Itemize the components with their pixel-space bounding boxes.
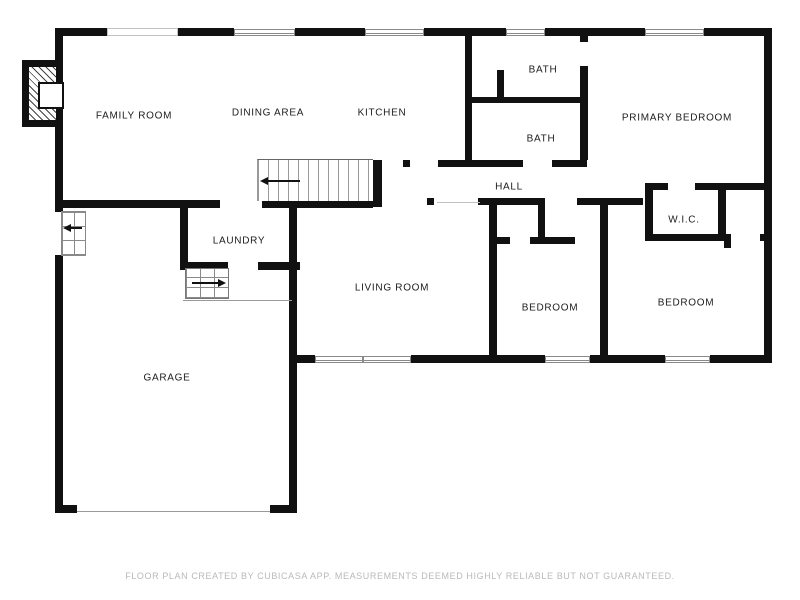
wall (760, 234, 772, 241)
floor-boundary-line (437, 202, 480, 203)
wall (424, 28, 506, 36)
wall (695, 183, 772, 190)
wall (295, 28, 365, 36)
wall (580, 66, 588, 160)
room-label-laundry: LAUNDRY (213, 236, 266, 247)
window (107, 28, 178, 36)
room-label-kitchen: KITCHEN (358, 108, 407, 119)
room-label-bath-upper: BATH (529, 65, 558, 76)
wall (55, 200, 220, 208)
wall (495, 237, 510, 244)
window (365, 29, 424, 36)
wall (427, 198, 434, 205)
room-label-bedroom-right: BEDROOM (658, 298, 715, 309)
wall (552, 160, 587, 167)
wall (764, 28, 772, 363)
wall (710, 355, 772, 363)
wall (373, 160, 382, 207)
wall (403, 160, 410, 167)
wall (262, 200, 373, 208)
wall (704, 28, 772, 36)
wall (438, 160, 523, 167)
window (645, 29, 704, 36)
wall (178, 28, 234, 36)
wall (538, 205, 545, 241)
wall (55, 255, 63, 513)
side-entry-steps (61, 211, 86, 256)
room-label-garage: GARAGE (144, 373, 191, 384)
room-label-family-room: FAMILY ROOM (96, 111, 172, 122)
wall (289, 200, 297, 513)
garage-door-opening (77, 511, 270, 512)
floor-boundary-line (183, 300, 292, 301)
wall (645, 234, 731, 241)
footer-disclaimer: FLOOR PLAN CREATED BY CUBICASA APP. MEAS… (0, 571, 800, 581)
room-label-bath-lower: BATH (527, 134, 556, 145)
wall (645, 183, 653, 241)
window (315, 356, 411, 363)
floorplan-canvas: FAMILY ROOMDINING AREAKITCHENBATHBATHPRI… (0, 0, 800, 600)
wall (590, 355, 665, 363)
room-label-living-room: LIVING ROOM (355, 283, 429, 294)
fireplace-firebox-icon (38, 82, 64, 109)
wall (724, 234, 731, 248)
room-label-hall: HALL (495, 182, 523, 193)
window (234, 29, 295, 36)
room-label-dining-area: DINING AREA (232, 108, 304, 119)
wall (600, 205, 608, 356)
wall (718, 190, 726, 234)
room-label-bedroom-middle: BEDROOM (522, 303, 579, 314)
wall (580, 36, 588, 42)
wall (55, 505, 77, 513)
wall (411, 355, 545, 363)
window (665, 356, 710, 363)
wall (55, 125, 63, 212)
wall (530, 237, 575, 244)
window (545, 356, 590, 363)
window (506, 29, 545, 36)
wall (465, 97, 582, 103)
room-label-wic: W.I.C. (668, 215, 699, 226)
wall (55, 28, 63, 62)
wall (489, 202, 497, 363)
wall (577, 198, 643, 205)
room-label-primary-bedroom: PRIMARY BEDROOM (622, 113, 732, 124)
wall (180, 200, 188, 270)
wall (545, 28, 645, 36)
wall (258, 262, 300, 270)
